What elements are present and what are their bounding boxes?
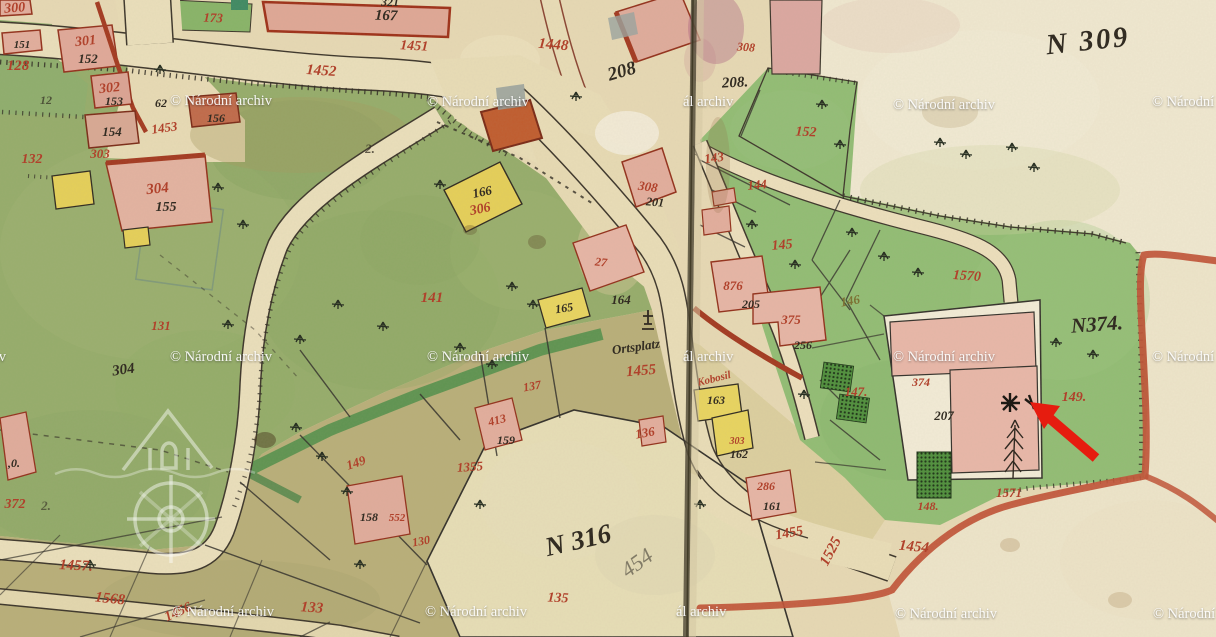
svg-text:© Národní archiv: © Národní archiv	[893, 349, 996, 365]
svg-text:© Národní archiv: © Národní archiv	[0, 349, 7, 365]
svg-text:ál archiv: ál archiv	[683, 349, 734, 365]
svg-text:ál archiv: ál archiv	[683, 94, 734, 110]
svg-text:© Národní a: © Národní a	[1152, 94, 1216, 110]
svg-text:© Národní archiv: © Národní archiv	[427, 349, 530, 365]
svg-text:ál archiv: ál archiv	[676, 604, 727, 620]
svg-text:© Národní archiv: © Národní archiv	[170, 93, 273, 109]
svg-text:© Národní archiv: © Národní archiv	[425, 604, 528, 620]
svg-text:© Národní a: © Národní a	[1153, 606, 1216, 622]
svg-text:© Národní archiv: © Národní archiv	[893, 97, 996, 113]
svg-text:© Národní archiv: © Národní archiv	[427, 94, 530, 110]
svg-text:© Národní archiv: © Národní archiv	[170, 349, 273, 365]
svg-text:© Národní archiv: © Národní archiv	[895, 606, 998, 622]
svg-text:© Národní a: © Národní a	[1152, 349, 1216, 365]
svg-text:© Národní archiv: © Národní archiv	[172, 604, 275, 620]
